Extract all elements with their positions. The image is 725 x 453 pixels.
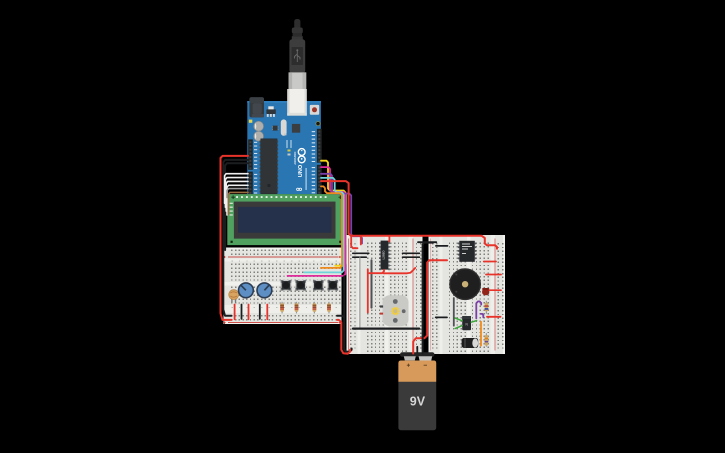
svg-text:9V: 9V [410, 395, 426, 409]
svg-text:UNO: UNO [298, 164, 304, 177]
svg-text:ARDUINO: ARDUINO [293, 151, 297, 164]
svg-text:L293D: L293D [382, 250, 386, 260]
